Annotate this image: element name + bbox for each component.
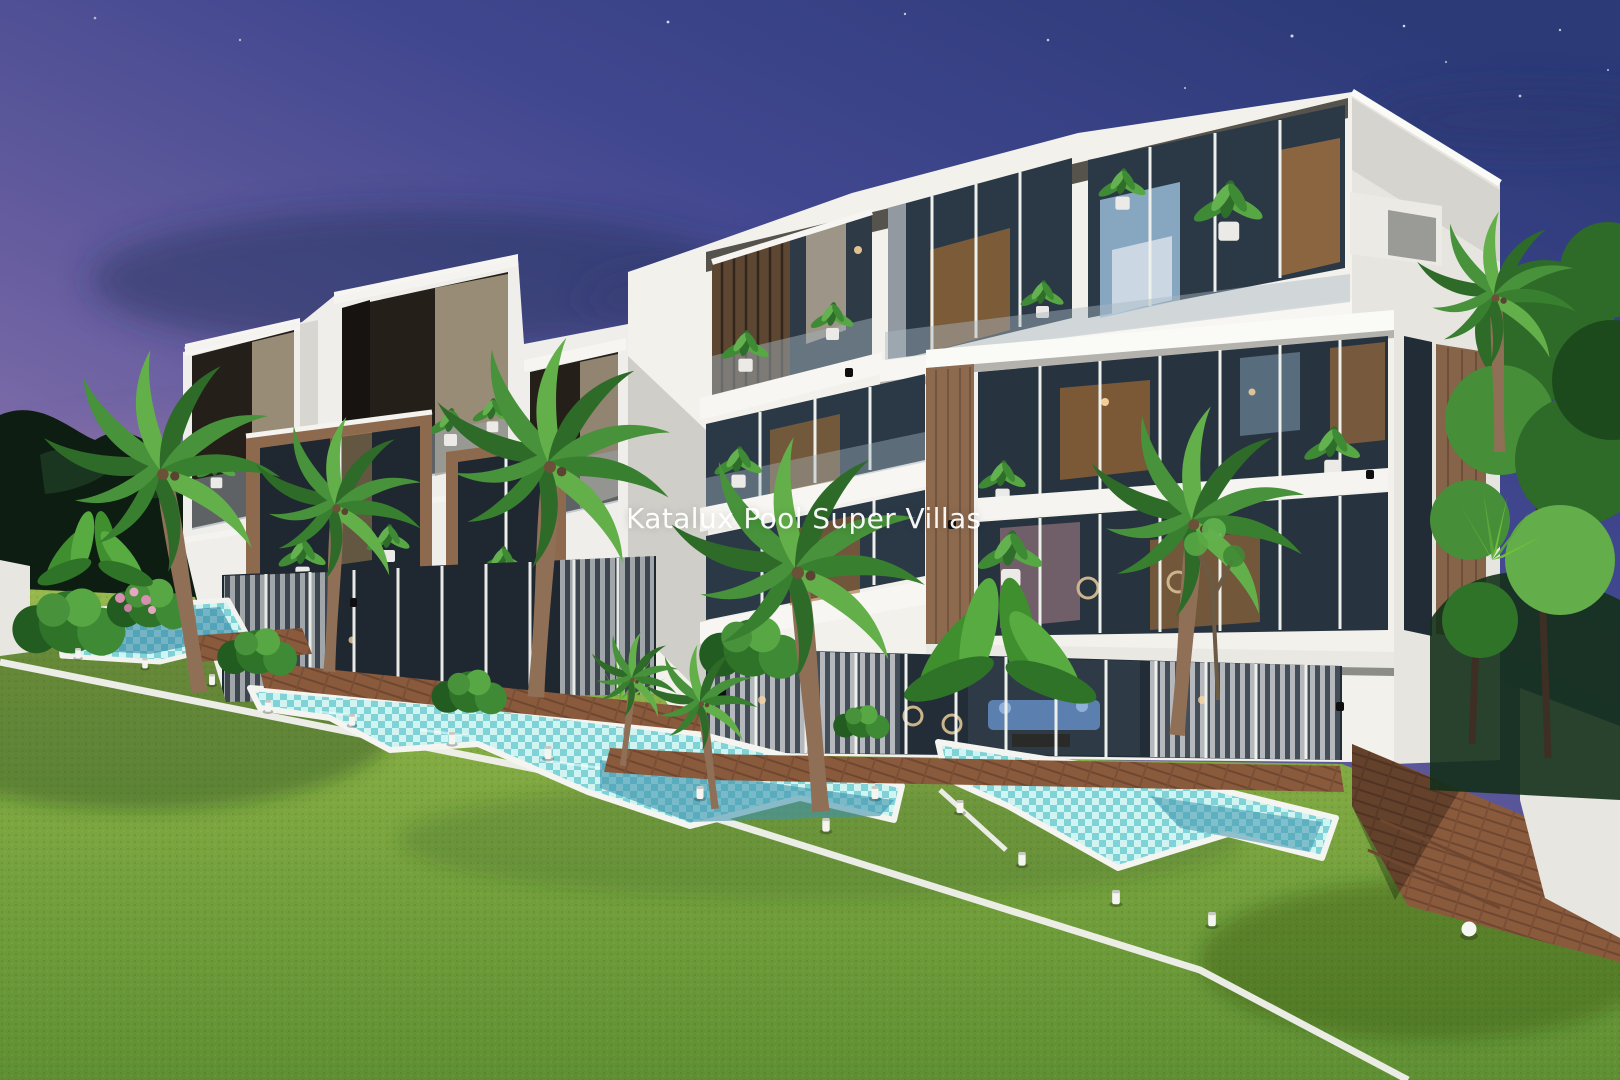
scene-canvas xyxy=(0,0,1620,1080)
villa-render-image: Katalux Pool Super Villas xyxy=(0,0,1620,1080)
watermark-text: Katalux Pool Super Villas xyxy=(626,502,982,535)
